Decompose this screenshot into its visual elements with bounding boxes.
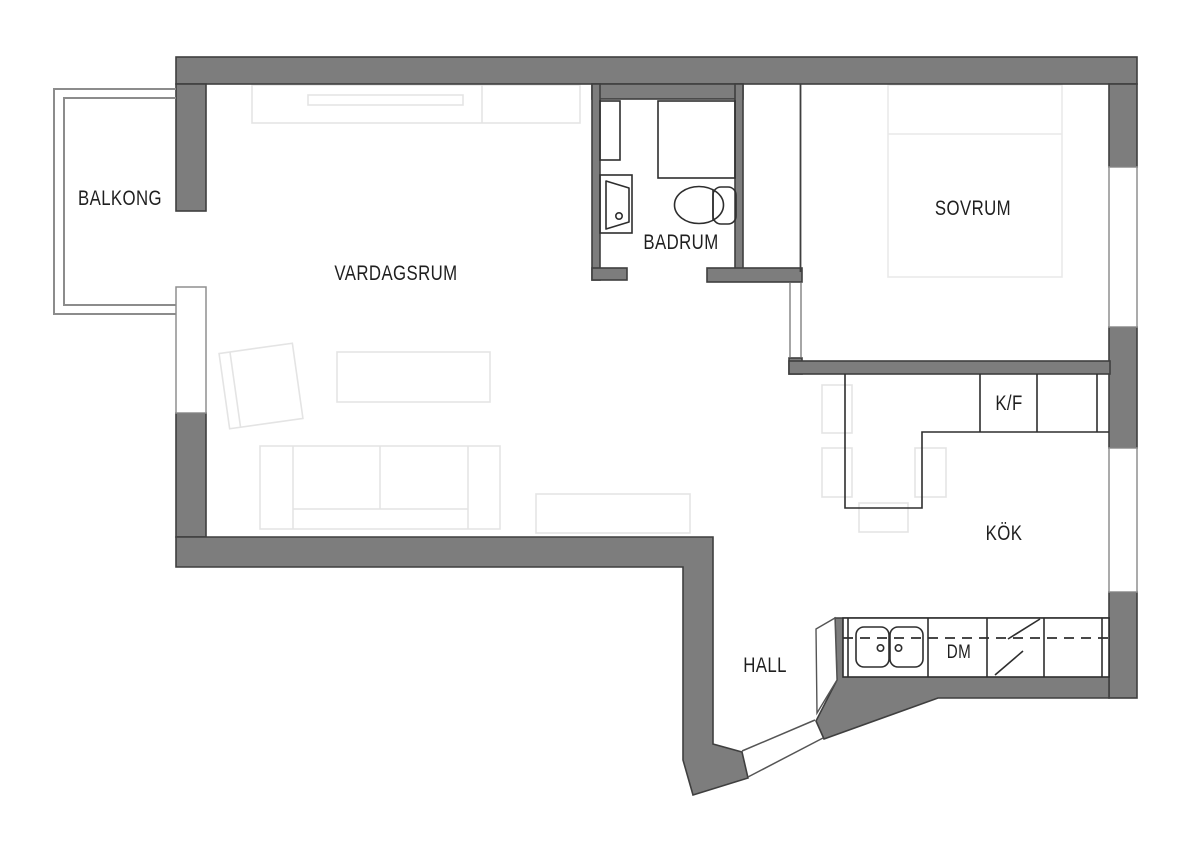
room-label-kok: KÖK xyxy=(986,522,1023,546)
wall-left-lower xyxy=(176,413,206,537)
wall-top xyxy=(176,57,1137,84)
wall-right-lower xyxy=(1109,592,1137,698)
wall-bathroom-top xyxy=(592,84,743,99)
floor-plan: BALKONG VARDAGSRUM BADRUM SOVRUM KÖK HAL… xyxy=(0,0,1200,848)
wall-bathroom-bottom-left xyxy=(592,268,627,280)
wall-bottom-hall xyxy=(176,537,748,795)
floor-plan-drawing xyxy=(0,0,1200,848)
armchair xyxy=(219,343,303,429)
window-kitchen xyxy=(1109,448,1137,592)
bathroom-sink xyxy=(600,175,632,233)
window-bedroom xyxy=(1109,167,1137,327)
room-label-vardagsrum: VARDAGSRUM xyxy=(334,262,457,286)
wall-left-upper xyxy=(176,84,206,211)
wall-bathroom-bottom-right xyxy=(707,268,802,282)
wall-bathroom-left xyxy=(592,84,600,280)
coffee-table xyxy=(337,352,490,402)
bed xyxy=(888,85,1062,277)
bathroom-fixtures xyxy=(600,101,736,233)
wall-bathroom-right xyxy=(735,84,743,280)
sideboard xyxy=(536,494,690,533)
wall-bedroom-bottom xyxy=(789,361,1110,374)
wall-right-upper xyxy=(1109,84,1137,167)
entrance-door-opening xyxy=(742,720,823,777)
dining-chairs xyxy=(822,385,946,532)
partitions xyxy=(790,84,801,358)
bathroom-cabinet xyxy=(600,101,620,160)
furniture-layer xyxy=(219,85,1062,533)
room-label-hall: HALL xyxy=(743,654,787,678)
wall-right-middle xyxy=(1109,327,1137,448)
room-label-badrum: BADRUM xyxy=(643,231,718,255)
window-living-room xyxy=(176,287,206,413)
sofa xyxy=(260,446,500,529)
shower xyxy=(658,101,735,178)
appliance-label-fridge-freezer: K/F xyxy=(995,392,1022,416)
room-label-balkong: BALKONG xyxy=(78,187,162,211)
walls-layer xyxy=(176,57,1137,795)
toilet xyxy=(675,187,737,225)
kitchen-peninsula xyxy=(845,374,1109,508)
appliance-label-dishwasher: DM xyxy=(947,642,971,664)
wardrobe xyxy=(252,85,580,123)
room-label-sovrum: SOVRUM xyxy=(935,197,1011,221)
kitchen-counter xyxy=(843,618,1109,677)
